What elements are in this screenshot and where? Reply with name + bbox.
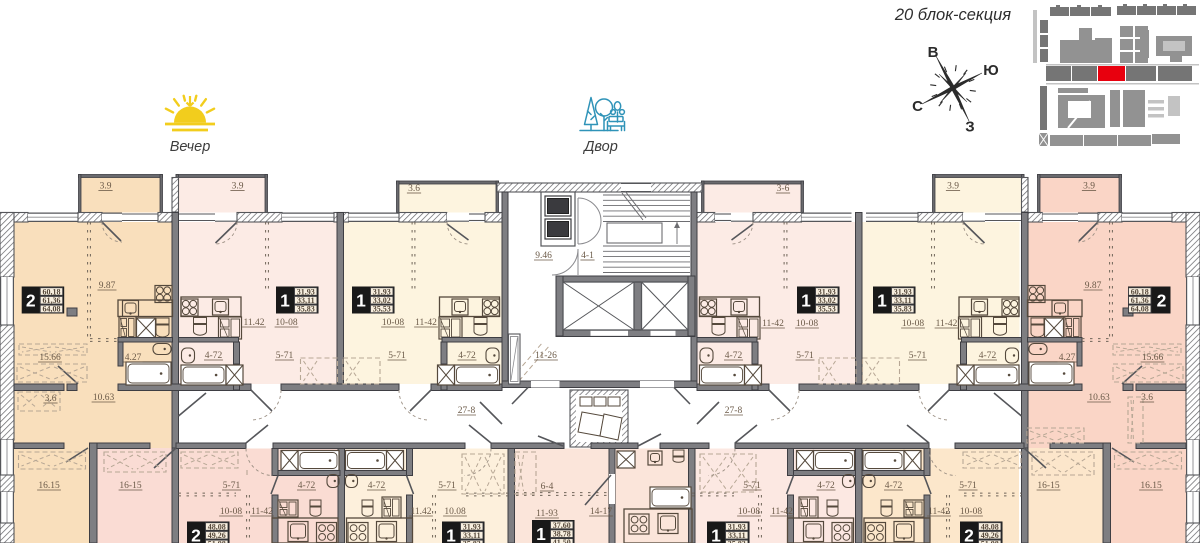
svg-text:35,83: 35,83: [297, 305, 315, 314]
svg-text:1: 1: [356, 291, 366, 311]
svg-text:33,02: 33,02: [373, 296, 391, 305]
svg-text:11-42: 11-42: [936, 319, 958, 329]
svg-text:Вечер: Вечер: [170, 139, 211, 155]
svg-text:4-72: 4-72: [817, 481, 835, 491]
svg-text:6-4: 6-4: [541, 482, 554, 492]
svg-text:1: 1: [711, 526, 721, 544]
svg-text:9.46: 9.46: [535, 251, 552, 261]
svg-text:61,36: 61,36: [43, 296, 61, 305]
svg-text:20 блок-секция: 20 блок-секция: [894, 6, 1011, 24]
svg-text:49,26: 49,26: [981, 531, 999, 540]
svg-text:15.66: 15.66: [39, 353, 61, 363]
svg-text:31,93: 31,93: [297, 287, 315, 296]
svg-text:11.42: 11.42: [410, 507, 431, 517]
svg-text:4-1: 4-1: [581, 251, 594, 261]
svg-text:10-08: 10-08: [796, 319, 818, 329]
svg-text:31,93: 31,93: [894, 287, 912, 296]
svg-text:38,78: 38,78: [553, 530, 571, 539]
svg-text:33,02: 33,02: [818, 296, 836, 305]
svg-text:4.27: 4.27: [125, 353, 142, 363]
svg-text:31,93: 31,93: [463, 522, 481, 531]
svg-text:60,18: 60,18: [43, 287, 61, 296]
svg-text:64,08: 64,08: [1131, 305, 1149, 314]
svg-text:48,08: 48,08: [208, 522, 226, 531]
svg-text:1: 1: [280, 291, 290, 311]
svg-text:5-71: 5-71: [223, 481, 241, 491]
svg-text:3.9: 3.9: [947, 182, 959, 192]
svg-text:Ю: Ю: [983, 62, 998, 79]
svg-text:16-15: 16-15: [119, 481, 141, 491]
svg-text:64,08: 64,08: [43, 305, 61, 314]
svg-text:2: 2: [191, 526, 201, 544]
svg-text:33,11: 33,11: [728, 531, 746, 540]
svg-text:37,60: 37,60: [553, 521, 571, 530]
svg-text:4-72: 4-72: [205, 351, 223, 361]
svg-text:Двор: Двор: [582, 139, 618, 155]
svg-text:33,11: 33,11: [297, 296, 315, 305]
svg-text:3.6: 3.6: [408, 184, 420, 194]
svg-text:5-71: 5-71: [796, 351, 814, 361]
svg-text:5-71: 5-71: [743, 481, 761, 491]
svg-text:33,11: 33,11: [463, 531, 481, 540]
svg-text:4-72: 4-72: [458, 351, 476, 361]
svg-text:3.9: 3.9: [232, 182, 244, 192]
svg-text:11-93: 11-93: [536, 509, 558, 519]
svg-text:З: З: [965, 119, 974, 136]
svg-text:3-6: 3-6: [777, 184, 790, 194]
svg-text:5-71: 5-71: [388, 351, 406, 361]
svg-text:27-8: 27-8: [458, 406, 476, 416]
svg-text:3.6: 3.6: [45, 394, 57, 404]
svg-text:11-42: 11-42: [771, 507, 793, 517]
svg-text:10-08: 10-08: [275, 318, 297, 328]
svg-text:4-72: 4-72: [725, 351, 743, 361]
svg-text:1: 1: [446, 526, 456, 544]
svg-text:3.6: 3.6: [1141, 393, 1153, 403]
svg-text:60,18: 60,18: [1131, 287, 1149, 296]
svg-text:9.87: 9.87: [99, 281, 116, 291]
svg-text:31,93: 31,93: [818, 287, 836, 296]
svg-text:1: 1: [877, 291, 887, 311]
svg-text:35,83: 35,83: [894, 305, 912, 314]
svg-text:10.63: 10.63: [93, 393, 115, 403]
svg-text:2: 2: [1157, 291, 1167, 311]
svg-text:48,08: 48,08: [981, 522, 999, 531]
svg-text:4-72: 4-72: [298, 481, 316, 491]
svg-text:35,53: 35,53: [818, 305, 836, 314]
svg-text:33,11: 33,11: [894, 296, 912, 305]
svg-text:10.08: 10.08: [444, 507, 466, 517]
svg-text:10.63: 10.63: [1088, 393, 1110, 403]
svg-text:4-72: 4-72: [368, 481, 386, 491]
svg-text:16-15: 16-15: [1037, 481, 1059, 491]
svg-text:41,50: 41,50: [553, 538, 571, 543]
svg-text:9.87: 9.87: [1085, 281, 1102, 291]
svg-text:35,53: 35,53: [373, 305, 391, 314]
svg-text:1: 1: [801, 291, 811, 311]
svg-text:10-08: 10-08: [382, 318, 404, 328]
svg-text:14-17: 14-17: [590, 507, 612, 517]
svg-text:5-71: 5-71: [959, 481, 977, 491]
svg-text:2: 2: [964, 526, 974, 544]
svg-text:11.42: 11.42: [243, 318, 264, 328]
svg-text:В: В: [928, 44, 939, 61]
svg-text:49,26: 49,26: [208, 531, 226, 540]
svg-text:11-42: 11-42: [762, 319, 784, 329]
svg-text:31,93: 31,93: [728, 522, 746, 531]
svg-text:16.15: 16.15: [38, 481, 60, 491]
svg-text:4-72: 4-72: [979, 351, 997, 361]
svg-text:31,93: 31,93: [373, 287, 391, 296]
svg-text:4.27: 4.27: [1059, 353, 1076, 363]
svg-text:11-42: 11-42: [928, 507, 950, 517]
svg-text:5-71: 5-71: [276, 351, 294, 361]
svg-text:5-71: 5-71: [909, 351, 927, 361]
svg-text:2: 2: [26, 291, 36, 311]
svg-text:10-08: 10-08: [220, 507, 242, 517]
svg-text:10-08: 10-08: [960, 507, 982, 517]
svg-text:3.9: 3.9: [1083, 182, 1095, 192]
svg-text:27-8: 27-8: [725, 406, 743, 416]
svg-text:4-72: 4-72: [885, 481, 903, 491]
svg-text:15.66: 15.66: [1142, 353, 1164, 363]
svg-text:5-71: 5-71: [438, 481, 456, 491]
svg-text:С: С: [912, 98, 923, 115]
svg-text:1: 1: [536, 524, 546, 543]
svg-text:16.15: 16.15: [1140, 481, 1162, 491]
svg-text:10-08: 10-08: [738, 507, 760, 517]
svg-text:61,36: 61,36: [1131, 296, 1149, 305]
svg-text:11-42: 11-42: [415, 318, 437, 328]
svg-text:11-26: 11-26: [535, 351, 557, 361]
svg-text:3.9: 3.9: [100, 182, 112, 192]
svg-text:10-08: 10-08: [902, 319, 924, 329]
svg-text:11-42: 11-42: [251, 507, 273, 517]
